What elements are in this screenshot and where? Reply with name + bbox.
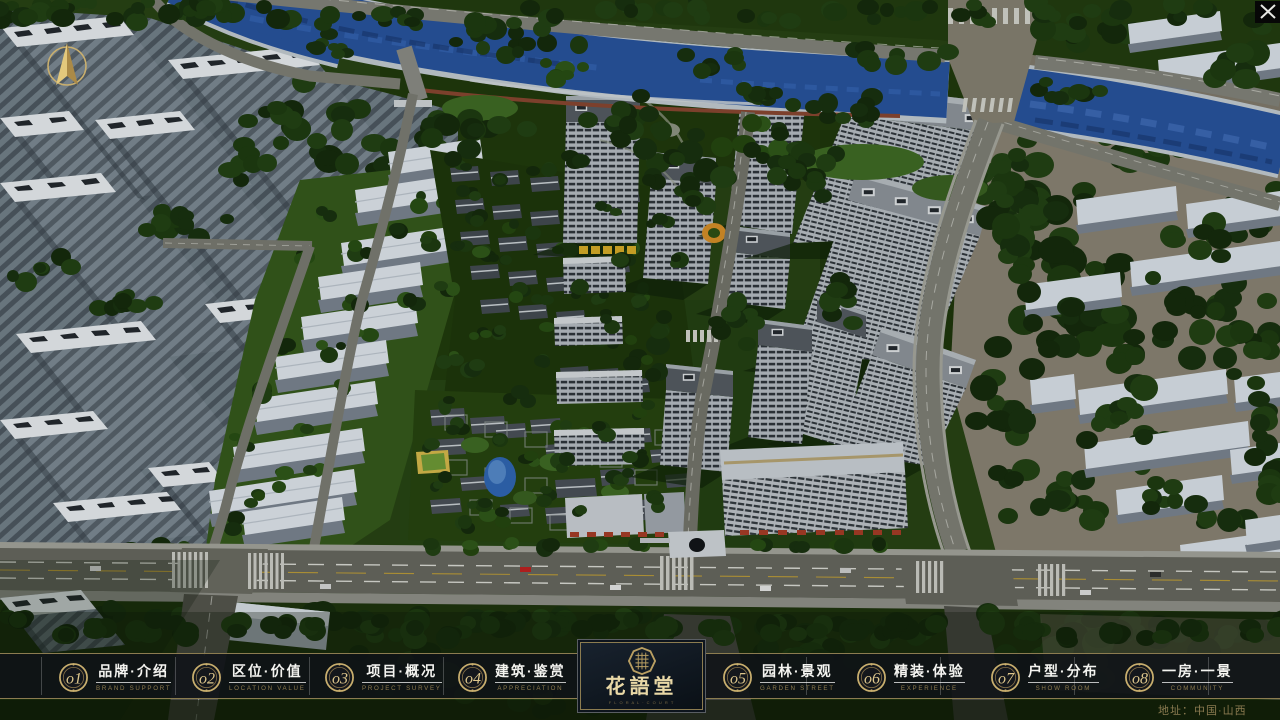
svg-text:o2: o2: [199, 670, 215, 687]
svg-text:o3: o3: [332, 670, 348, 687]
svg-text:o7: o7: [998, 670, 1015, 687]
svg-text:o5: o5: [730, 670, 746, 687]
svg-text:o4: o4: [465, 670, 481, 687]
svg-text:o1: o1: [66, 670, 82, 687]
svg-text:o6: o6: [864, 670, 880, 687]
svg-text:o8: o8: [1132, 670, 1148, 687]
